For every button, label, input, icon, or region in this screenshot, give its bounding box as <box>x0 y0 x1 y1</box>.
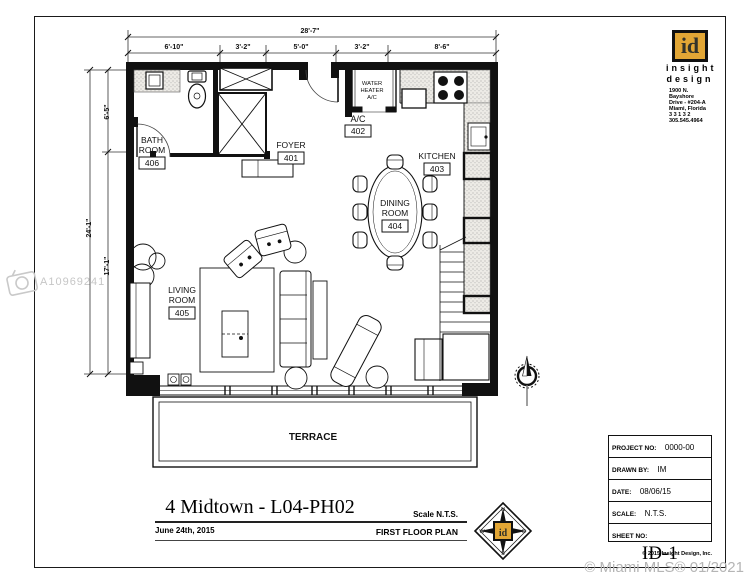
logo-address: 1900 N. Bayshore Drive - #204-A Miami, F… <box>669 88 714 124</box>
compass-n: N <box>501 507 505 513</box>
svg-text:403: 403 <box>430 164 444 174</box>
mls-id-watermark: A10969241 <box>40 276 105 288</box>
dim-seg3: 5'-0" <box>293 44 308 51</box>
title-block-table: PROJECT NO: 0000-00 DRAWN BY: IM DATE: 0… <box>608 435 712 542</box>
bathroom-label: BATH ROOM 406 <box>139 135 165 169</box>
svg-text:KITCHEN: KITCHEN <box>418 151 455 161</box>
svg-text:HEATER: HEATER <box>360 88 383 94</box>
compass-s: S <box>501 551 505 557</box>
title-block-row-project: PROJECT NO: 0000-00 <box>609 436 711 458</box>
svg-text:BATH: BATH <box>141 135 163 145</box>
dim-seg2: 3'-2" <box>235 44 250 51</box>
svg-text:LIVING: LIVING <box>168 285 196 295</box>
svg-text:402: 402 <box>351 126 365 136</box>
dim-left-total: 24'-1" <box>86 219 93 238</box>
side-table-bottom <box>285 367 307 389</box>
dim-seg1: 6'-10" <box>165 44 184 51</box>
living-room-furniture <box>130 223 388 389</box>
dim-left-upper: 6'-5" <box>104 104 111 119</box>
dim-top-total: 28'-7" <box>301 28 320 35</box>
dim-seg4: 3'-2" <box>354 44 369 51</box>
bathroom-sink <box>146 72 163 89</box>
plan-name: FIRST FLOOR PLAN <box>358 527 458 537</box>
svg-text:A/C: A/C <box>367 95 377 101</box>
compass-w: W <box>479 529 485 535</box>
living-label: LIVING ROOM 405 <box>168 285 196 319</box>
terrace-label: TERRACE <box>289 432 338 443</box>
speaker-boxes <box>168 374 191 385</box>
foyer-label: FOYER 401 <box>276 140 305 164</box>
title-rule-bottom <box>155 540 467 541</box>
sofa-console <box>313 281 327 359</box>
svg-text:ROOM: ROOM <box>139 145 165 155</box>
kitchen-sink <box>468 123 490 150</box>
toilet <box>188 71 206 108</box>
mls-copyright-watermark: © Miami MLS® 01/2021 <box>560 559 744 576</box>
diamond-logo: id N E S W <box>475 503 531 559</box>
compass-e: E <box>522 529 526 535</box>
north-compass-icon <box>515 356 539 406</box>
svg-text:A/C: A/C <box>350 114 366 124</box>
water-heater-label: WATER HEATER A/C <box>360 81 383 101</box>
dining-label: DINING ROOM 404 <box>380 198 410 232</box>
insight-design-logo: id insight design 1900 N. Bayshore Drive… <box>666 30 714 124</box>
title-block-row-scale: SCALE: N.T.S. <box>609 502 711 524</box>
dim-seg5: 8'-6" <box>434 44 449 51</box>
camera-watermark-icon <box>5 266 37 295</box>
dim-left-lower: 17'-1" <box>104 257 111 276</box>
title-rule-top <box>155 521 467 523</box>
coffee-table <box>222 311 248 357</box>
stove <box>434 72 467 103</box>
svg-text:WATER: WATER <box>362 81 382 87</box>
svg-text:405: 405 <box>175 308 189 318</box>
scanned-floor-plan-page: 28'-7" 6'-10" 3'-2" 5'-0" 3'-2" 8'-6" 24… <box>0 0 750 580</box>
id-logo-icon: id <box>672 30 708 62</box>
title-block-row-date: DATE: 08/06/15 <box>609 480 711 502</box>
logo-word-design: design <box>666 74 714 84</box>
floor-lamp-group <box>130 244 165 288</box>
ac-label: A/C 402 <box>345 114 371 137</box>
svg-text:ROOM: ROOM <box>382 208 408 218</box>
svg-text:FOYER: FOYER <box>276 140 305 150</box>
logo-word-insight: insight <box>666 63 714 73</box>
side-table-chaise <box>366 366 388 388</box>
svg-text:404: 404 <box>388 221 402 231</box>
drawing-title: 4 Midtown - L04-PH02 <box>150 496 370 519</box>
svg-text:406: 406 <box>145 158 159 168</box>
insight-copyright: © 2015 Insight Design, Inc. <box>570 551 712 557</box>
svg-text:401: 401 <box>284 153 298 163</box>
drawing-date: June 24th, 2015 <box>155 526 215 535</box>
dishwasher <box>402 89 426 108</box>
window-band <box>160 386 470 395</box>
svg-text:DINING: DINING <box>380 198 410 208</box>
svg-text:ROOM: ROOM <box>169 295 195 305</box>
kitchen-label: KITCHEN 403 <box>418 151 455 175</box>
diamond-logo-initials: id <box>499 528 508 539</box>
title-block-row-drawn: DRAWN BY: IM <box>609 458 711 480</box>
scale-note: Scale N.T.S. <box>358 510 458 519</box>
sofa <box>280 271 311 367</box>
